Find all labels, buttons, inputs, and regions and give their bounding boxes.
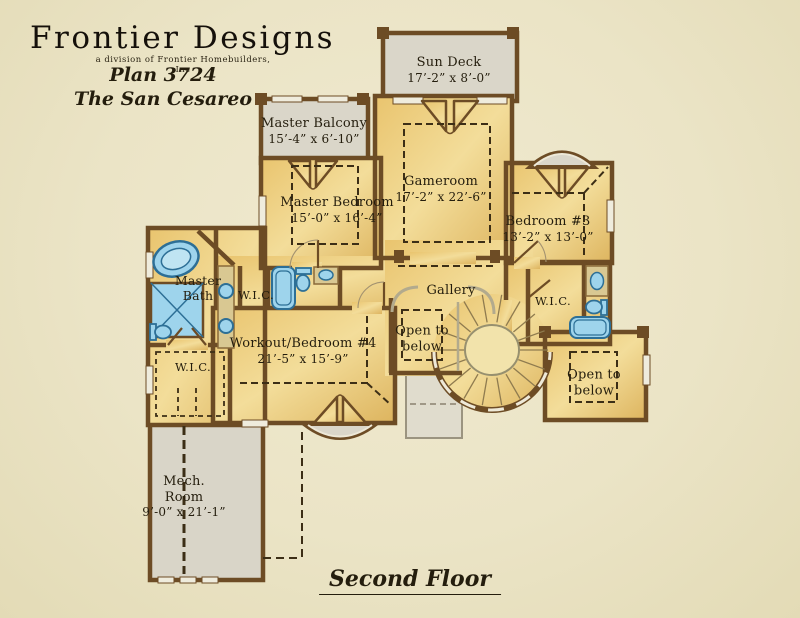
right-sink-fixture: [586, 266, 608, 296]
master-toilet-fixture: [150, 324, 171, 340]
hall-sink-fixture: [314, 267, 338, 284]
sun-deck-room: [383, 33, 517, 101]
master-balcony-room: [261, 99, 368, 163]
roof-outline-dash: [263, 432, 302, 558]
right-toilet-fixture: [586, 300, 607, 315]
brand-logo: Frontier Designs: [30, 20, 335, 56]
hall-bathtub-fixture: [272, 267, 295, 309]
hall-toilet-fixture: [296, 268, 311, 291]
right-bathtub-fixture: [570, 317, 610, 338]
plan-number: Plan 3724: [109, 64, 216, 86]
master-vanity-sinks: [218, 266, 234, 348]
mech-room: [150, 420, 263, 580]
floor-title: Second Floor: [319, 566, 501, 595]
plan-name: The San Cesareo: [74, 88, 252, 110]
floor-plan-sheet: Frontier Designs a division of Frontier …: [0, 0, 800, 618]
